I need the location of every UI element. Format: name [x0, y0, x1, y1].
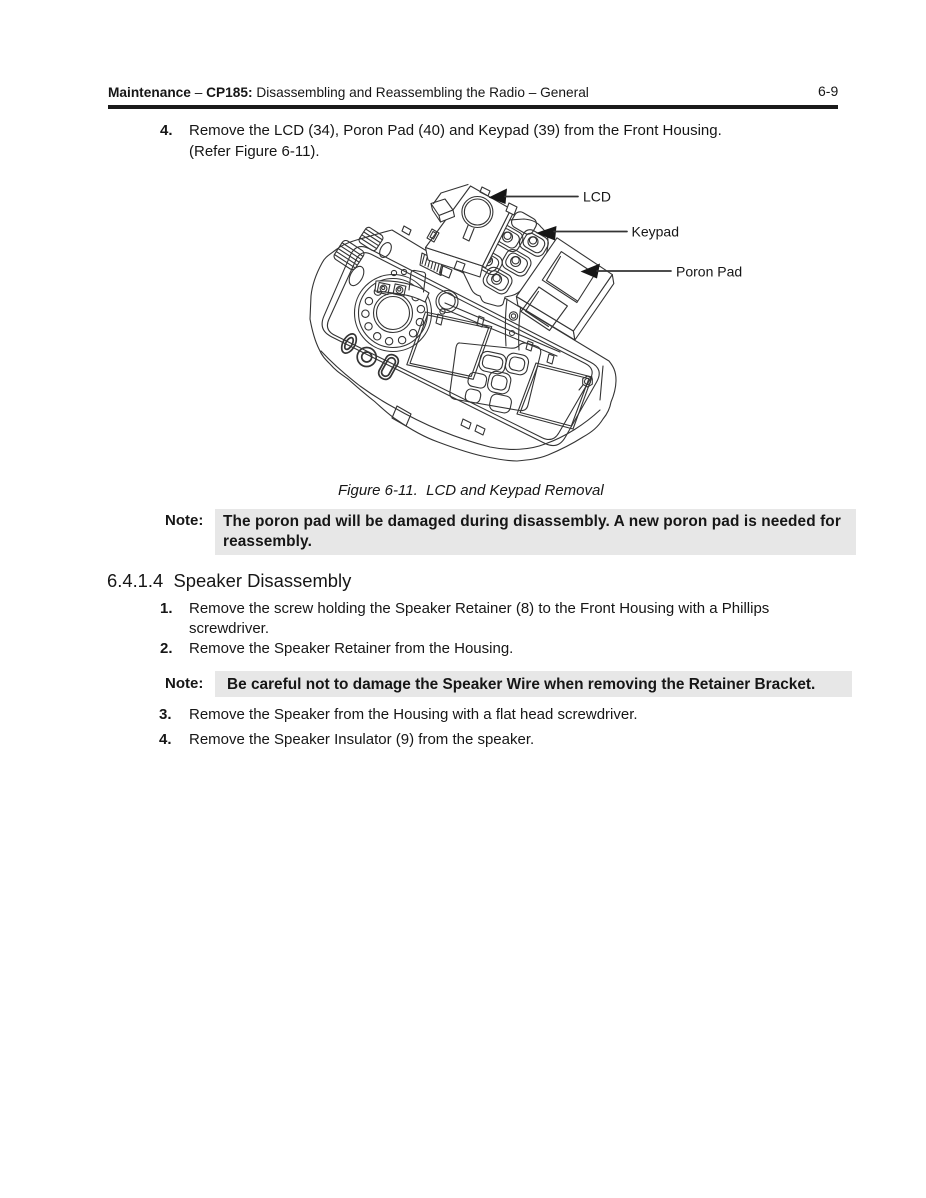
svg-text:Keypad: Keypad	[632, 224, 679, 240]
svg-text:LCD: LCD	[583, 189, 611, 205]
svg-text:Poron Pad: Poron Pad	[676, 264, 742, 280]
